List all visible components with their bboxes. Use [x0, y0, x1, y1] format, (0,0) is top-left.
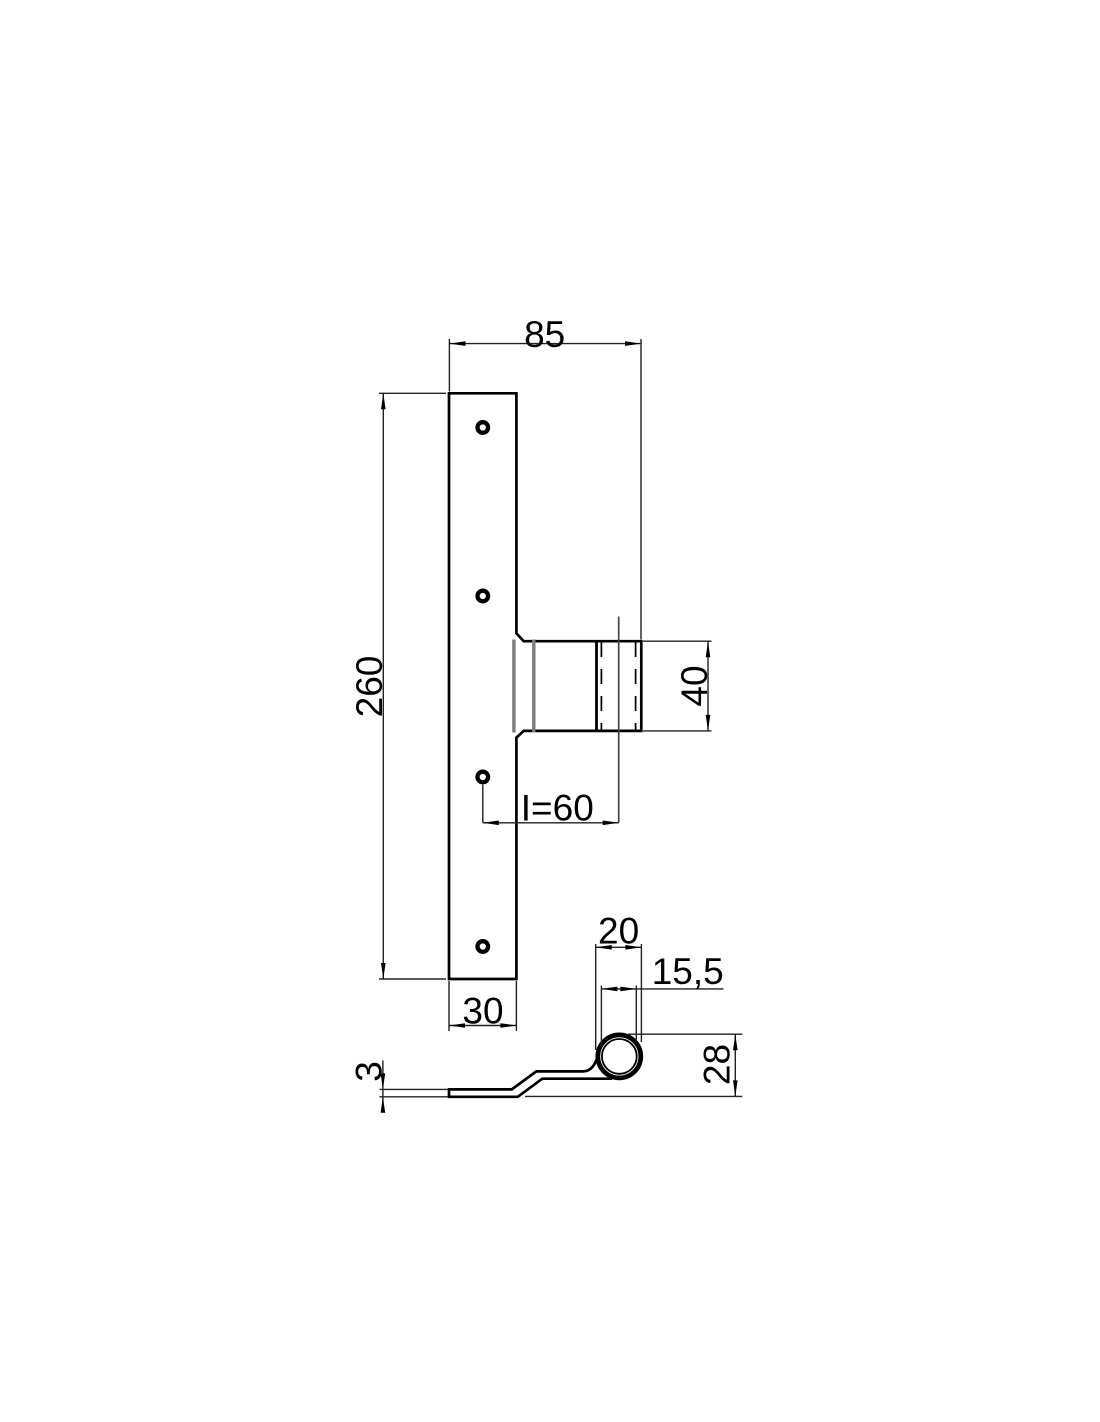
svg-text:28: 28 — [697, 1044, 738, 1085]
svg-text:I=60: I=60 — [521, 788, 594, 829]
svg-text:40: 40 — [674, 665, 715, 706]
svg-text:85: 85 — [524, 314, 565, 355]
svg-text:20: 20 — [598, 911, 639, 952]
svg-text:3: 3 — [349, 1061, 390, 1082]
svg-text:15,5: 15,5 — [652, 951, 724, 992]
svg-text:260: 260 — [349, 656, 390, 718]
svg-text:30: 30 — [462, 991, 503, 1032]
